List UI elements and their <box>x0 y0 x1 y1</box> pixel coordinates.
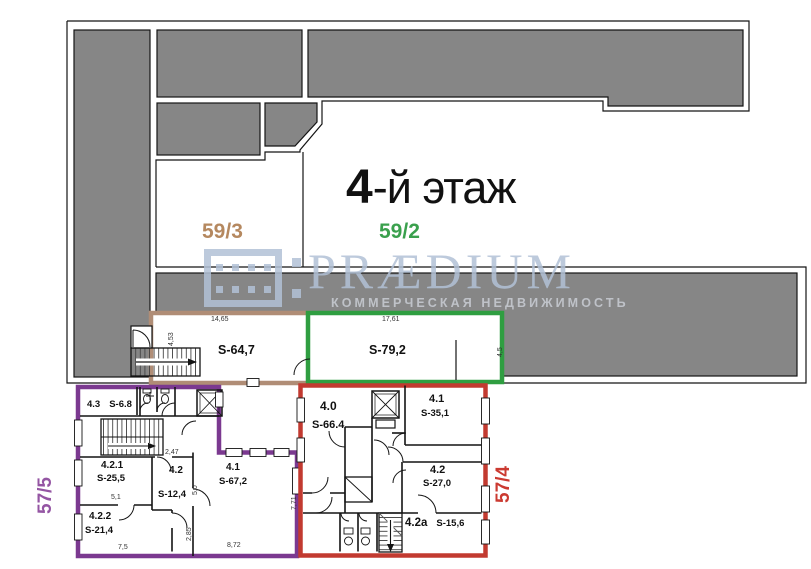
floor-number: 4 <box>346 164 373 212</box>
room-42a-num: 4.2a <box>405 518 427 530</box>
room-422-area: S-21,4 <box>85 526 113 536</box>
window-icon <box>297 438 305 462</box>
room-421-area: S-25,5 <box>97 474 125 484</box>
tan-dim-top: 14,65 <box>211 316 229 323</box>
window-icon <box>75 514 83 540</box>
green-dim-right: 4,5 <box>497 347 504 357</box>
room-42p-num: 4.2 <box>169 466 183 476</box>
floor-suffix: -й этаж <box>373 165 516 210</box>
room-41p-dim-bottom: 8,72 <box>227 542 241 549</box>
room-42a-area: S-15,6 <box>436 519 464 529</box>
window-icon <box>247 379 259 387</box>
room-40-num: 4.0 <box>320 400 337 412</box>
window-icon <box>216 392 224 407</box>
tan-dim-left: 4,53 <box>168 332 175 346</box>
window-icon <box>482 520 490 544</box>
room-41r-area: S-35,1 <box>421 409 449 419</box>
room-41r-num: 4.1 <box>429 394 444 405</box>
window-icon <box>75 420 83 446</box>
window-icon <box>250 449 266 457</box>
floor-title: 4-й этаж <box>346 164 516 212</box>
room-41p-area: S-67,2 <box>219 477 247 487</box>
window-icon <box>482 398 490 424</box>
window-icon <box>274 449 289 457</box>
room-422-num: 4.2.2 <box>89 512 111 522</box>
section-label-59-2: 59/2 <box>379 221 420 242</box>
room-4-3-label: 4.3 S-6.8 <box>87 400 132 410</box>
room-40-area: S-66.4 <box>312 420 344 431</box>
stair-landing <box>131 326 152 348</box>
section-label-57-4: 57/4 <box>494 466 513 503</box>
window-icon <box>226 449 242 457</box>
room-421-num: 4.2.1 <box>101 461 123 471</box>
room-4-3-area: S-6.8 <box>109 400 132 410</box>
section-label-59-3: 59/3 <box>202 221 243 242</box>
room-42r-area: S-27,0 <box>423 479 451 489</box>
room-42r-num: 4.2 <box>430 465 445 476</box>
room-41p-num: 4.1 <box>226 463 240 473</box>
room-422-dim-right: 2,85 <box>186 527 193 541</box>
window-icon <box>482 486 490 512</box>
room-42p-dim-top: 2,47 <box>165 449 179 456</box>
red-staircase-icon <box>379 513 402 552</box>
room-422-dim-bottom: 7,5 <box>118 544 128 551</box>
green-area-label: S-79,2 <box>369 344 406 357</box>
room-421-dim: 5,1 <box>111 494 121 501</box>
section-label-57-5: 57/5 <box>36 477 55 514</box>
room-41p-dim-right: 7,71 <box>291 496 298 510</box>
room-42p-dim-right: 5,0 <box>192 485 199 495</box>
room-4-3-num: 4.3 <box>87 400 100 410</box>
window-icon <box>75 460 83 486</box>
room-42p-area: S-12,4 <box>158 490 186 500</box>
window-icon <box>482 438 490 464</box>
floor-plan-canvas: PRÆDIUM КОММЕРЧЕСКАЯ НЕДВИЖИМОСТЬ <box>0 0 811 569</box>
window-icon <box>297 398 305 422</box>
room-42a-label: 4.2a S-15,6 <box>405 518 464 530</box>
green-dim-top: 17,61 <box>382 316 400 323</box>
purple-staircase-icon <box>101 419 163 455</box>
tan-area-label: S-64,7 <box>218 344 255 357</box>
